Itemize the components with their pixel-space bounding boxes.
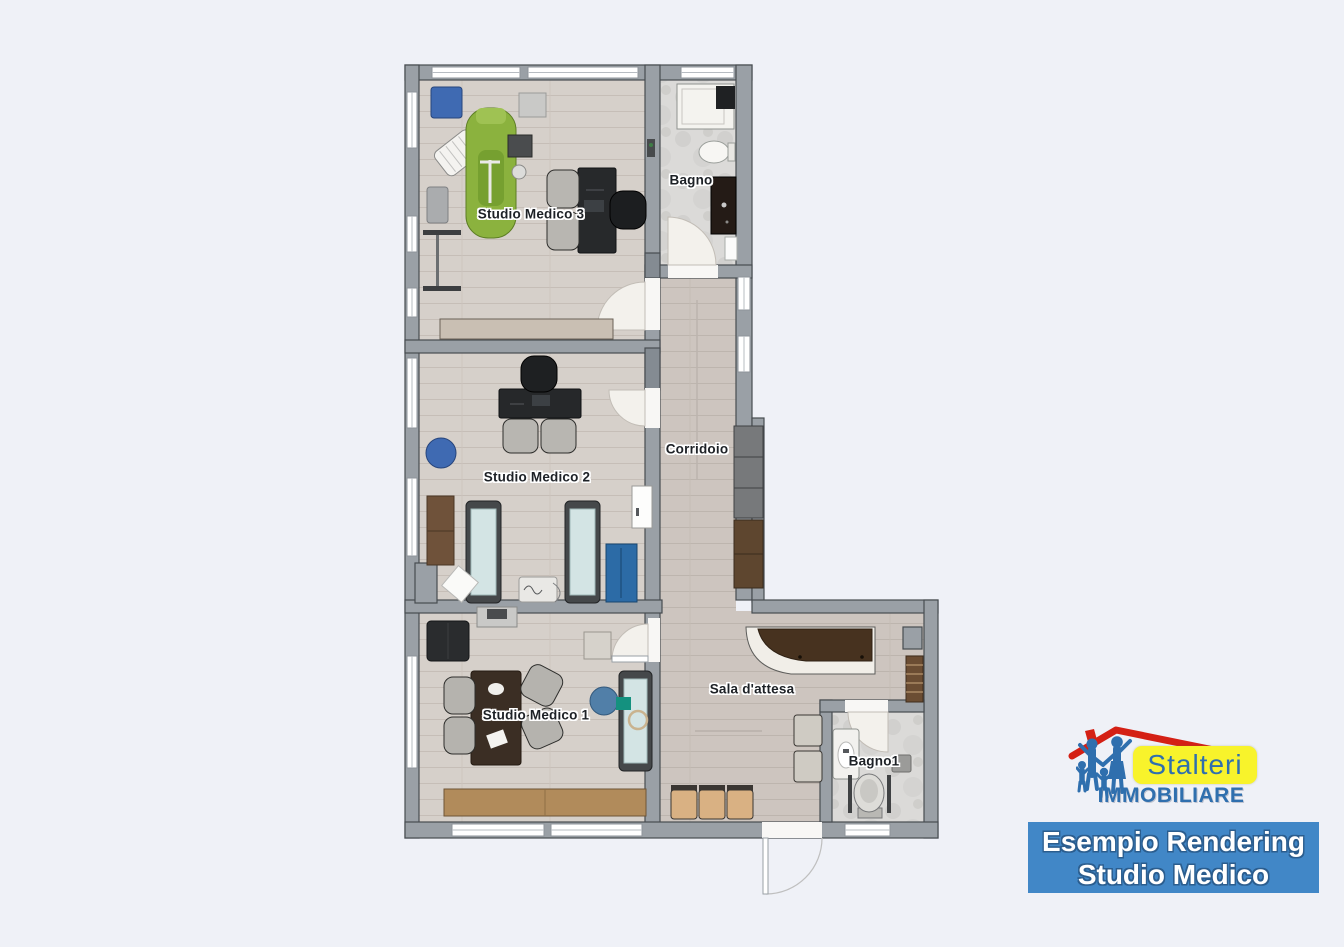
wall-niche-cabinet — [632, 486, 652, 528]
ecg-device — [519, 577, 560, 602]
wall-equipment-bar — [423, 230, 461, 235]
radiator-shelf — [906, 656, 923, 702]
floorplan-page: Studio Medico 3 Bagno Studio Medico 2 Co… — [0, 0, 1344, 947]
window — [738, 277, 750, 310]
wall-sm3-sm2 — [405, 340, 660, 353]
waiting-chair — [671, 785, 697, 819]
stalteri-logo: Stalteri IMMOBILIARE — [1040, 718, 1320, 820]
guest-chair — [444, 677, 475, 714]
dental-lamp — [512, 165, 526, 179]
equipment-tray — [519, 93, 546, 117]
furniture-corridoio — [734, 426, 763, 588]
door-swing-entrance — [766, 838, 822, 894]
logo-subtitle: IMMOBILIARE — [1080, 784, 1262, 808]
side-table — [794, 715, 822, 746]
plant — [649, 143, 653, 147]
side-table — [794, 751, 822, 782]
wall-jamb-sm2-door — [645, 348, 660, 390]
window — [738, 336, 750, 372]
waiting-chair — [727, 785, 753, 819]
printer — [477, 607, 517, 627]
column-sala — [903, 627, 922, 649]
office-chair — [610, 191, 646, 229]
guest-chair — [547, 170, 579, 208]
room-label-sala-attesa: Sala d'attesa — [710, 682, 795, 697]
door-opening-sm1 — [648, 618, 660, 662]
door-leaf-sm1 — [612, 656, 648, 662]
window — [407, 288, 417, 317]
exam-bed — [616, 671, 652, 771]
banner-line-2: Studio Medico — [1078, 858, 1269, 891]
window — [407, 358, 417, 428]
toilet — [699, 141, 735, 163]
office-chair — [521, 356, 557, 392]
corridor-cabinet-gray — [734, 426, 763, 518]
instrument-console — [508, 135, 532, 157]
window — [528, 67, 638, 78]
blue-stool — [426, 438, 456, 468]
door-leaf-entrance — [763, 838, 768, 894]
wall-shelf — [647, 139, 655, 157]
room-label-studio-medico-1: Studio Medico 1 — [483, 708, 590, 723]
wall-jamb-sm3-door — [645, 253, 660, 278]
sofa — [427, 621, 469, 661]
caption-banner: Esempio Rendering Studio Medico — [1028, 822, 1319, 893]
door-opening-bagno — [668, 265, 718, 278]
bathroom-vanity — [711, 177, 736, 234]
blue-stool — [590, 687, 618, 715]
room-label-studio-medico-3: Studio Medico 3 — [478, 207, 585, 222]
side-cabinet — [427, 496, 454, 565]
room-label-bagno1: Bagno1 — [849, 754, 900, 769]
window — [845, 824, 890, 836]
door-opening-entrance — [762, 822, 822, 838]
exam-bed — [565, 501, 600, 603]
bath-mat — [725, 237, 737, 260]
guest-chair — [503, 419, 538, 453]
blue-cabinet — [606, 544, 637, 602]
window — [407, 656, 417, 768]
room-label-bagno: Bagno — [670, 173, 713, 188]
guest-chair — [444, 717, 475, 754]
window — [432, 67, 520, 78]
wall-sala-top — [752, 600, 938, 613]
corridor-cabinet-brown — [734, 520, 763, 588]
guest-chair — [541, 419, 576, 453]
door-opening-sm2 — [645, 388, 660, 428]
wall-equipment-rail — [436, 235, 439, 286]
medical-cart — [427, 187, 448, 223]
column-sm2 — [415, 563, 437, 603]
door-opening-bagno1 — [845, 700, 888, 712]
window — [681, 67, 734, 78]
bathroom-heater — [716, 86, 735, 109]
logo-name-box: Stalteri — [1133, 746, 1257, 784]
logo-name: Stalteri — [1147, 749, 1242, 781]
window — [551, 824, 642, 836]
wooden-sideboard — [444, 789, 646, 816]
window — [407, 216, 417, 252]
wall-sala-right — [924, 600, 938, 838]
wall-equipment-bar — [423, 286, 461, 291]
storage-cabinet — [440, 319, 613, 339]
door-opening-sm3 — [645, 278, 660, 330]
banner-line-1: Esempio Rendering — [1042, 825, 1305, 858]
room-label-corridoio: Corridoio — [666, 442, 729, 457]
room-label-studio-medico-2: Studio Medico 2 — [484, 470, 591, 485]
window — [452, 824, 544, 836]
side-table — [584, 632, 611, 659]
window — [407, 92, 417, 148]
blue-cabinet — [431, 87, 462, 118]
waiting-chair — [699, 785, 725, 819]
doctor-desk — [499, 389, 581, 418]
window — [407, 478, 417, 556]
